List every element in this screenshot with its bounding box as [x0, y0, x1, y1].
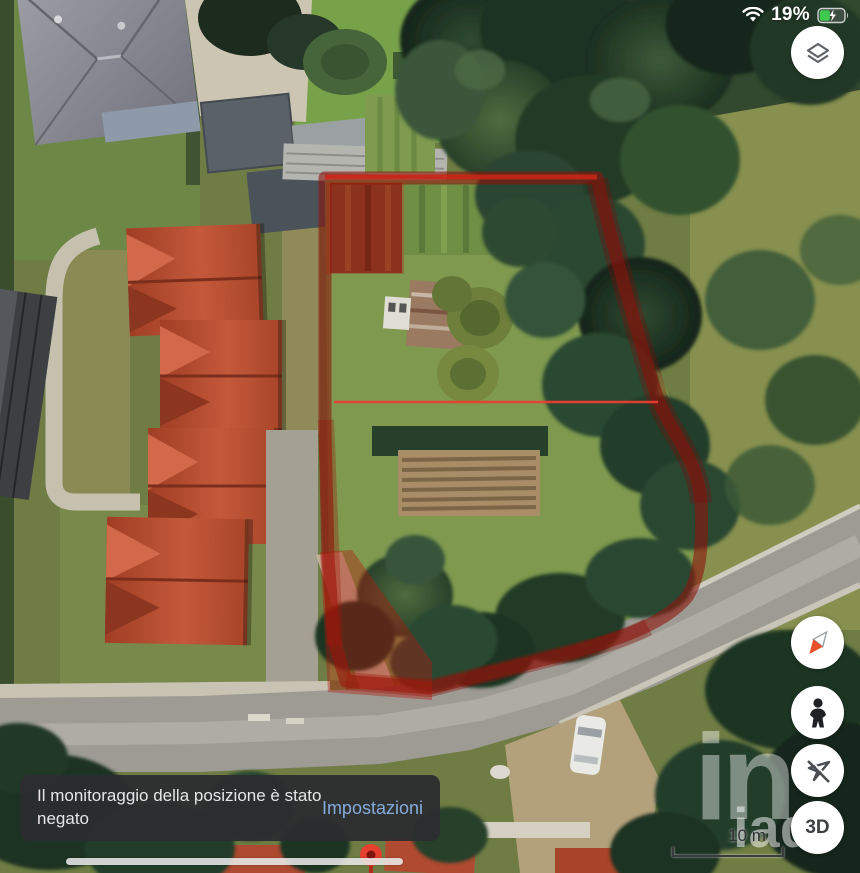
compass-button[interactable] — [791, 616, 844, 669]
pegman-button[interactable] — [791, 686, 844, 739]
scale-bar-line — [672, 847, 784, 857]
compass-needle-icon — [801, 626, 835, 660]
location-disabled-button[interactable] — [791, 744, 844, 797]
status-bar: 19% — [742, 4, 850, 26]
location-denied-toast: Il monitoraggio della posizione è stato … — [20, 775, 440, 841]
layers-button[interactable] — [791, 26, 844, 79]
scale-bar: 10 m — [672, 826, 786, 857]
pegman-icon — [802, 696, 834, 730]
battery-charging-icon — [817, 7, 850, 24]
wifi-icon — [742, 7, 764, 24]
3d-button[interactable]: 3D — [791, 801, 844, 854]
satellite-map-canvas[interactable] — [0, 0, 860, 873]
home-indicator[interactable] — [66, 858, 403, 865]
toast-message: Il monitoraggio della posizione è stato … — [37, 785, 322, 831]
location-disabled-icon — [801, 754, 835, 788]
scale-bar-label: 10 m — [672, 826, 786, 846]
3d-button-label: 3D — [805, 817, 829, 839]
battery-percent: 19% — [771, 4, 810, 26]
toast-settings-button[interactable]: Impostazioni — [322, 798, 423, 819]
layers-icon — [803, 38, 833, 68]
